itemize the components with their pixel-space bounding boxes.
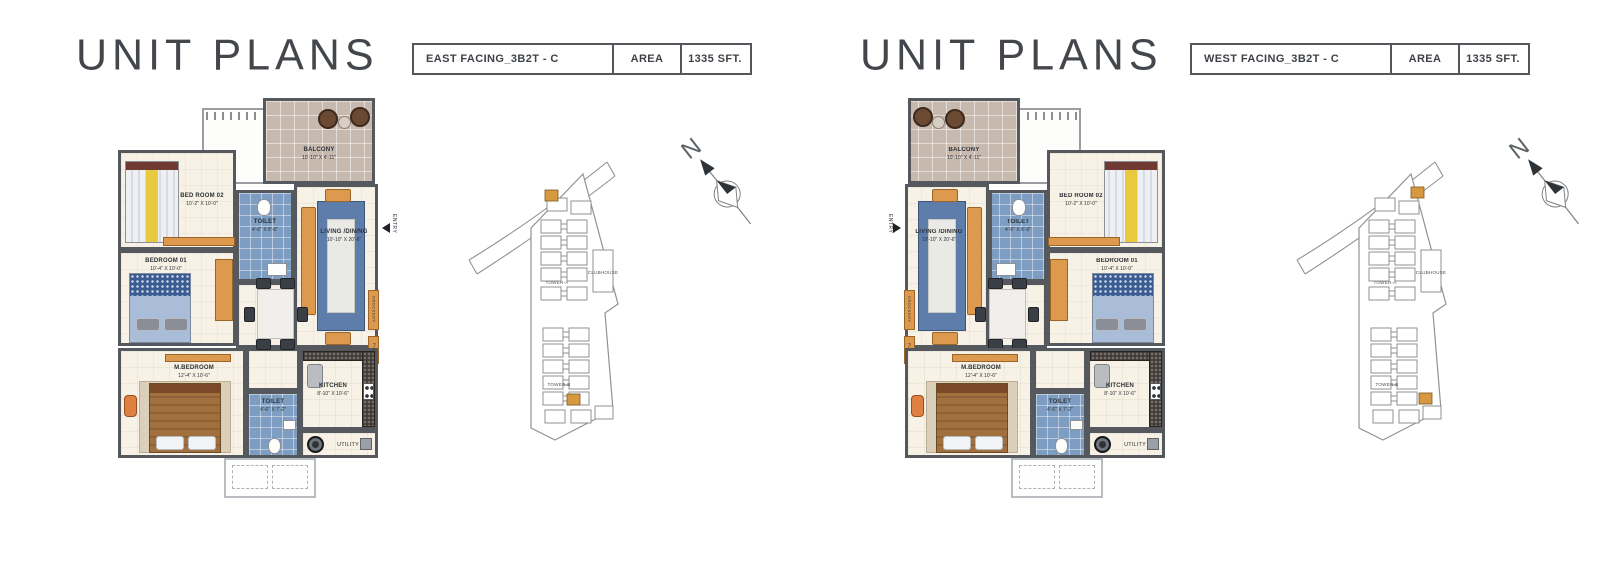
bedroom2-label: BED ROOM 02 10'-2" X 10'-0" [1052,193,1110,207]
toilet-basin [283,420,296,430]
tower-a-label: TOWER-A [545,280,569,285]
balcony-chair [945,109,965,129]
room-kitchen: KITCHEN 8'-10" X 10'-6" [1087,348,1165,430]
bed-blanket [146,162,158,242]
living-name: LIVING /DINING [910,229,968,237]
entry-arrow-icon [893,223,901,233]
bed-blanket [1093,274,1153,296]
toilet1-dims: 4'-6" X 7'-2" [1040,407,1080,414]
shaft-marks [1021,112,1077,120]
mbedroom-label: M.BEDROOM 12'-4" X 10'-6" [149,365,239,379]
bed-pillow [943,436,971,450]
bedroom1-name: BEDROOM 01 [123,258,209,266]
sitout-panel [232,465,268,489]
armchair [325,189,351,202]
clubhouse-label: CLUBHOUSE [588,270,618,275]
bedroom1-dims: 10'-4" X 10'-0" [1074,266,1160,273]
balcony-chair [913,107,933,127]
sitout-panel [1019,465,1055,489]
sitout-panel [272,465,308,489]
dining-chair [280,278,295,289]
toilet2-label: TOILET 4'-6" X 8'-6" [243,219,287,233]
shaft-marks [206,112,262,120]
bed-pillow [1095,318,1119,331]
kitchen-dims: 8'-10" X 10'-6" [305,391,361,398]
north-arrow-icon: N [1501,132,1588,232]
bedroom2-name: BED ROOM 02 [1052,193,1110,201]
toilet2-name: TOILET [243,219,287,227]
site-map-svg: CLUBHOUSE TOWER-A TOWER-B N [455,132,760,482]
living-name: LIVING /DINING [315,229,373,237]
kitchen-dims: 8'-10" X 10'-6" [1092,391,1148,398]
bedroom1-label: BEDROOM 01 10'-4" X 10'-0" [123,258,209,272]
toilet2-name: TOILET [996,219,1040,227]
wardrobe [1048,237,1120,246]
armchair [932,332,958,345]
wardrobe [215,259,233,321]
balcony-chair [318,109,338,129]
utility-name: UTILITY [325,442,371,449]
room-mbedroom: M.BEDROOM 12'-4" X 10'-6" [905,348,1033,458]
wardrobe [952,354,1018,362]
bedroom1-label: BEDROOM 01 10'-4" X 10'-0" [1074,258,1160,272]
bed-headboard [126,162,178,170]
area-label-west: AREA [1390,45,1458,73]
tower-b-label: TOWER-B [547,382,570,387]
balcony-label: BALCONY 10'-10" X 4'-11" [270,147,368,161]
dining-chair [1012,278,1027,289]
north-label: N [676,133,706,165]
dining-chair [244,307,255,322]
entry-label: ENTRY [887,214,892,233]
toilet-wc [1012,199,1026,216]
room-bedroom2: BED ROOM 02 10'-2" X 10'-0" [118,150,236,250]
toilet1-label: TOILET 4'-6" X 7'-2" [1040,399,1080,413]
bed [129,273,191,343]
dining-chair [988,278,1003,289]
kitchen-label: KITCHEN 8'-10" X 10'-6" [305,383,361,397]
dining-chair [297,307,308,322]
mbedroom-label: M.BEDROOM 12'-4" X 10'-6" [936,365,1026,379]
spec-table-east: EAST FACING_3B2T - C AREA 1335 SFT. [412,43,752,75]
floor-plan-upper: BALCONY 10'-10" X 4'-11" BED ROOM 02 10'… [905,98,1165,348]
room-kitchen: KITCHEN 8'-10" X 10'-6" [300,348,378,430]
toilet2-label: TOILET 4'-6" X 8'-6" [996,219,1040,233]
dining-set [975,278,1039,348]
crockery-label: CROCKERY [372,296,376,323]
brochure-page: { "panels": [ {"title":"UNIT PLANS","uni… [0,0,1600,563]
dining-chair [256,278,271,289]
toilet2-dims: 4'-6" X 8'-6" [243,227,287,234]
bed [125,161,179,243]
site-map-east: CLUBHOUSE TOWER-A TOWER-B N [455,132,760,482]
balcony-label: BALCONY 10'-10" X 4'-11" [915,147,1013,161]
toilet-basin [267,263,287,276]
bedroom1-dims: 10'-4" X 10'-0" [123,266,209,273]
bedroom2-dims: 10'-2" X 10'-0" [173,201,231,208]
room-passage [1033,348,1087,391]
toilet-basin [996,263,1016,276]
toilet-wc [268,438,281,454]
dining-chair [280,339,295,350]
crockery-label: CROCKERY [908,296,912,323]
sitout-porch [1011,458,1103,498]
living-label: LIVING /DINING 10'-10" X 20'-6" [910,229,968,243]
toilet-wc [1055,438,1068,454]
utility-name: UTILITY [1112,442,1158,449]
unit-name-west: WEST FACING_3B2T - C [1192,45,1390,73]
highlight-unit-bottom [1419,393,1432,404]
floor-plan-lower: M.BEDROOM 12'-4" X 10'-6" TOILET 4'-6" X… [905,348,1165,498]
toilet-wc [257,199,271,216]
crockery-unit: CROCKERY [368,290,379,330]
floor-plan-upper: BALCONY 10'-10" X 4'-11" BED ROOM 02 10'… [118,98,378,348]
wardrobe [1050,259,1068,321]
bed-headboard [937,384,1007,393]
armchair [932,189,958,202]
area-value-west: 1335 SFT. [1458,45,1526,73]
room-utility: UTILITY [1087,430,1165,458]
bed-pillow [975,436,1003,450]
bed [936,383,1008,453]
toilet2-dims: 4'-6" X 8'-6" [996,227,1040,234]
floor-plan-west: BALCONY 10'-10" X 4'-11" BED ROOM 02 10'… [905,98,1165,498]
sitout-panel [1059,465,1095,489]
spec-table-west: WEST FACING_3B2T - C AREA 1335 SFT. [1190,43,1530,75]
bed [1092,273,1154,343]
balcony-dims: 10'-10" X 4'-11" [915,155,1013,162]
area-value-east: 1335 SFT. [680,45,748,73]
page-title-west: UNIT PLANS [860,34,1163,78]
dining-table [257,289,294,339]
north-arrow-icon: N [673,132,760,232]
bed [149,383,221,453]
balcony-name: BALCONY [270,147,368,155]
stove-icon [363,383,374,400]
dining-table [989,289,1026,339]
room-toilet1: TOILET 4'-6" X 7'-2" [1033,391,1087,458]
clubhouse-label: CLUBHOUSE [1416,270,1446,275]
balcony-table [932,116,945,129]
puja-label: PUJA [372,343,376,355]
toilet1-dims: 4'-6" X 7'-2" [253,407,293,414]
bed [1104,161,1158,243]
balcony-chair [350,107,370,127]
crockery-unit: CROCKERY [904,290,915,330]
floor-plan-lower: M.BEDROOM 12'-4" X 10'-6" TOILET 4'-6" X… [118,348,378,498]
room-bedroom2: BED ROOM 02 10'-2" X 10'-0" [1047,150,1165,250]
washing-machine [1094,436,1111,453]
unit-name-east: EAST FACING_3B2T - C [414,45,612,73]
room-mbedroom: M.BEDROOM 12'-4" X 10'-6" [118,348,246,458]
kitchen-name: KITCHEN [305,383,361,391]
bed-pillow [164,318,188,331]
tower-a-label: TOWER-A [1373,280,1397,285]
kitchen-label: KITCHEN 8'-10" X 10'-6" [1092,383,1148,397]
wardrobe [163,237,235,246]
kitchen-name: KITCHEN [1092,383,1148,391]
entry-arrow-icon [382,223,390,233]
mbedroom-dims: 12'-4" X 10'-6" [936,373,1026,380]
bedroom2-label: BED ROOM 02 10'-2" X 10'-0" [173,193,231,207]
living-label: LIVING /DINING 10'-10" X 20'-6" [315,229,373,243]
highlight-unit-bottom [567,394,580,405]
room-toilet1: TOILET 4'-6" X 7'-2" [246,391,300,458]
room-bedroom1: BEDROOM 01 10'-4" X 10'-0" [1047,250,1165,346]
living-dims: 10'-10" X 20'-6" [910,237,968,244]
bedroom2-name: BED ROOM 02 [173,193,231,201]
armchair [325,332,351,345]
north-label: N [1504,133,1534,165]
entry-label: ENTRY [391,214,396,233]
balcony-dims: 10'-10" X 4'-11" [270,155,368,162]
room-passage [246,348,300,391]
bedroom-seat [911,395,924,417]
mbedroom-name: M.BEDROOM [936,365,1026,373]
stove-icon [1150,383,1161,400]
bed-blanket [1125,162,1137,242]
floor-plan-east: BALCONY 10'-10" X 4'-11" BED ROOM 02 10'… [118,98,378,498]
living-dims: 10'-10" X 20'-6" [315,237,373,244]
dining-set [244,278,308,348]
site-map-svg: CLUBHOUSE TOWER-A TOWER-B N [1283,132,1588,482]
dining-chair [256,339,271,350]
highlight-unit-top [545,190,558,201]
bed-headboard [150,384,220,393]
bed-headboard [1105,162,1157,170]
highlight-unit-top [1411,187,1424,198]
site-map-west: CLUBHOUSE TOWER-A TOWER-B N [1283,132,1588,482]
sitout-porch [224,458,316,498]
room-utility: UTILITY [300,430,378,458]
wardrobe [165,354,231,362]
bedroom-seat [124,395,137,417]
mbedroom-name: M.BEDROOM [149,365,239,373]
toilet1-label: TOILET 4'-6" X 7'-2" [253,399,293,413]
room-balcony: BALCONY 10'-10" X 4'-11" [908,98,1020,184]
page-title-east: UNIT PLANS [76,34,379,78]
toilet1-name: TOILET [253,399,293,407]
room-toilet2: TOILET 4'-6" X 8'-6" [989,190,1047,282]
room-toilet2: TOILET 4'-6" X 8'-6" [236,190,294,282]
room-balcony: BALCONY 10'-10" X 4'-11" [263,98,375,184]
bed-blanket [130,274,190,296]
bedroom1-name: BEDROOM 01 [1074,258,1160,266]
mbedroom-dims: 12'-4" X 10'-6" [149,373,239,380]
dining-chair [975,307,986,322]
bed-pillow [1123,318,1147,331]
tower-b-label: TOWER-B [1375,382,1398,387]
bed-pillow [156,436,184,450]
balcony-name: BALCONY [915,147,1013,155]
area-label-east: AREA [612,45,680,73]
bedroom2-dims: 10'-2" X 10'-0" [1052,201,1110,208]
utility-label: UTILITY [1112,442,1158,449]
toilet-basin [1070,420,1083,430]
bed-pillow [136,318,160,331]
bed-pillow [188,436,216,450]
utility-label: UTILITY [325,442,371,449]
dining-chair [1028,307,1039,322]
room-bedroom1: BEDROOM 01 10'-4" X 10'-0" [118,250,236,346]
toilet1-name: TOILET [1040,399,1080,407]
balcony-table [338,116,351,129]
washing-machine [307,436,324,453]
